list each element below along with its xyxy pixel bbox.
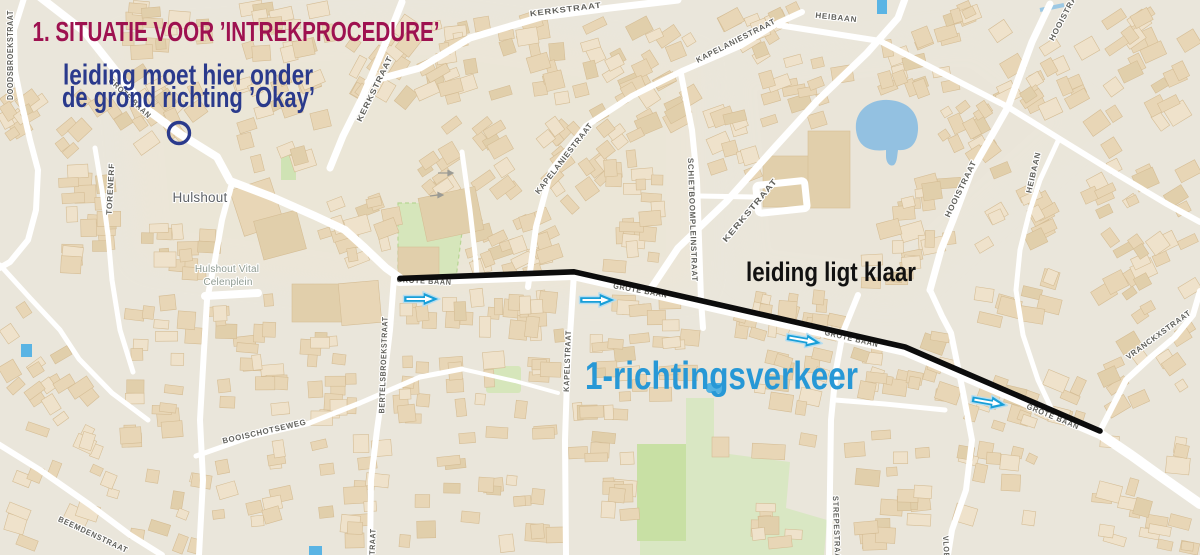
svg-text:1-richtingsverkeer: 1-richtingsverkeer	[585, 355, 858, 398]
svg-text:Hulshout: Hulshout	[173, 190, 228, 205]
svg-text:DOODSBROEKSTRAAT: DOODSBROEKSTRAAT	[6, 10, 15, 100]
svg-text:de grond richting ’Okay’: de grond richting ’Okay’	[62, 82, 315, 114]
svg-text:1. SITUATIE VOOR ’INTREKPROCED: 1. SITUATIE VOOR ’INTREKPROCEDURE’	[33, 16, 440, 47]
svg-text:Hulshout Vital: Hulshout Vital	[195, 264, 259, 275]
svg-text:leiding ligt klaar: leiding ligt klaar	[746, 257, 916, 287]
svg-text:Celenplein: Celenplein	[203, 277, 252, 288]
